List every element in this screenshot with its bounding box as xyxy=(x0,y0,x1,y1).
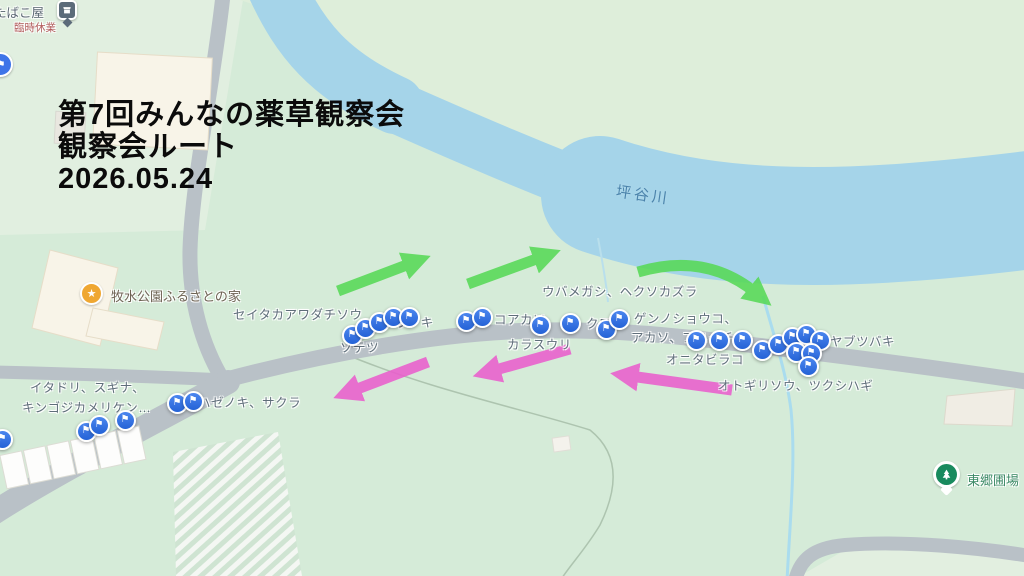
plant-label: ウバメガシ、ヘクソカズラ xyxy=(542,281,698,300)
saved-flag-marker[interactable]: ⚑ xyxy=(115,410,136,431)
saved-flag-marker[interactable]: ⚑ xyxy=(732,330,753,351)
route-arrow xyxy=(468,257,542,284)
saved-flag-marker[interactable]: ⚑ xyxy=(686,330,707,351)
flag-glyph: ⚑ xyxy=(361,323,370,333)
saved-flag-marker[interactable]: ⚑ xyxy=(472,307,493,328)
shop-glyph xyxy=(62,5,72,15)
flag-glyph: ⚑ xyxy=(566,318,575,328)
plant-label: オニタビラコ xyxy=(666,349,744,368)
plant-label: セイタカアワダチソウ xyxy=(233,304,363,323)
flag-glyph: ⚑ xyxy=(189,396,198,406)
title-line-1: 第7回みんなの薬草観察会 xyxy=(58,100,405,132)
tree-poi-icon[interactable] xyxy=(933,461,960,488)
flag-glyph: ⚑ xyxy=(405,312,414,322)
title-line-3: 2026.05.24 xyxy=(58,164,405,196)
star-poi-icon[interactable]: ★ xyxy=(80,282,103,305)
flag-glyph: ⚑ xyxy=(173,398,182,408)
map-canvas: 坪谷川 ★ 牧水公園ふるさとの家 東郷圃場 たばこ屋 臨時休業 ⚑ 第7回みんな… xyxy=(0,0,1024,576)
poi-label-shop[interactable]: たばこ屋 xyxy=(0,2,44,21)
flag-glyph: ⚑ xyxy=(121,415,130,425)
plant-label: ヤブツバキ xyxy=(830,331,895,350)
route-arrow xyxy=(338,263,412,291)
poi-label-house[interactable]: 牧水公園ふるさとの家 xyxy=(111,286,241,305)
route-arrow xyxy=(630,376,732,390)
flag-glyph: ⚑ xyxy=(615,314,624,324)
flag-glyph: ⚑ xyxy=(715,335,724,345)
flag-glyph: ⚑ xyxy=(738,335,747,345)
plant-label: オトギリソウ、ツクシハギ xyxy=(718,375,873,394)
flag-glyph: ⚑ xyxy=(774,339,783,349)
saved-flag-marker[interactable]: ⚑ xyxy=(183,391,204,412)
saved-flag-marker[interactable]: ⚑ xyxy=(530,315,551,336)
flag-glyph: ⚑ xyxy=(602,324,611,334)
flag-glyph: ⚑ xyxy=(0,434,6,444)
flag-glyph: ⚑ xyxy=(478,312,487,322)
route-arrow xyxy=(352,362,428,391)
saved-flag-marker[interactable]: ⚑ xyxy=(609,309,630,330)
flag-glyph: ⚑ xyxy=(804,361,813,371)
flag-glyph: ⚑ xyxy=(692,335,701,345)
flag-glyph: ⚑ xyxy=(758,345,767,355)
plant-label: ハゼノキ、サクラ xyxy=(198,392,301,411)
plant-label: カラスウリ xyxy=(507,334,572,353)
saved-flag-marker[interactable]: ⚑ xyxy=(560,313,581,334)
saved-flag-marker[interactable]: ⚑ xyxy=(89,415,110,436)
tree-glyph xyxy=(936,464,957,485)
poi-label-field[interactable]: 東郷圃場 xyxy=(967,470,1019,489)
saved-flag-marker[interactable]: ⚑ xyxy=(798,356,819,377)
flag-glyph: ⚑ xyxy=(462,316,471,326)
flag-glyph: ⚑ xyxy=(536,320,545,330)
flag-glyph: ⚑ xyxy=(0,58,5,71)
parking-hatched-area xyxy=(173,432,302,576)
flag-glyph: ⚑ xyxy=(389,312,398,322)
flag-glyph: ⚑ xyxy=(802,329,811,339)
plant-label: ゲンノショウコ、 xyxy=(634,308,737,327)
saved-flag-marker[interactable]: ⚑ xyxy=(709,330,730,351)
saved-flag-marker[interactable]: ⚑ xyxy=(399,307,420,328)
poi-shop-status: 臨時休業 xyxy=(14,20,56,35)
shop-poi-icon[interactable] xyxy=(57,0,77,20)
title-overlay: 第7回みんなの薬草観察会 観察会ルート 2026.05.24 xyxy=(58,100,405,196)
star-glyph: ★ xyxy=(87,287,97,300)
flag-glyph: ⚑ xyxy=(95,420,104,430)
title-line-2: 観察会ルート xyxy=(58,132,405,164)
plant-label: イタドリ、スギナ、 xyxy=(30,377,145,396)
flag-glyph: ⚑ xyxy=(792,347,801,357)
